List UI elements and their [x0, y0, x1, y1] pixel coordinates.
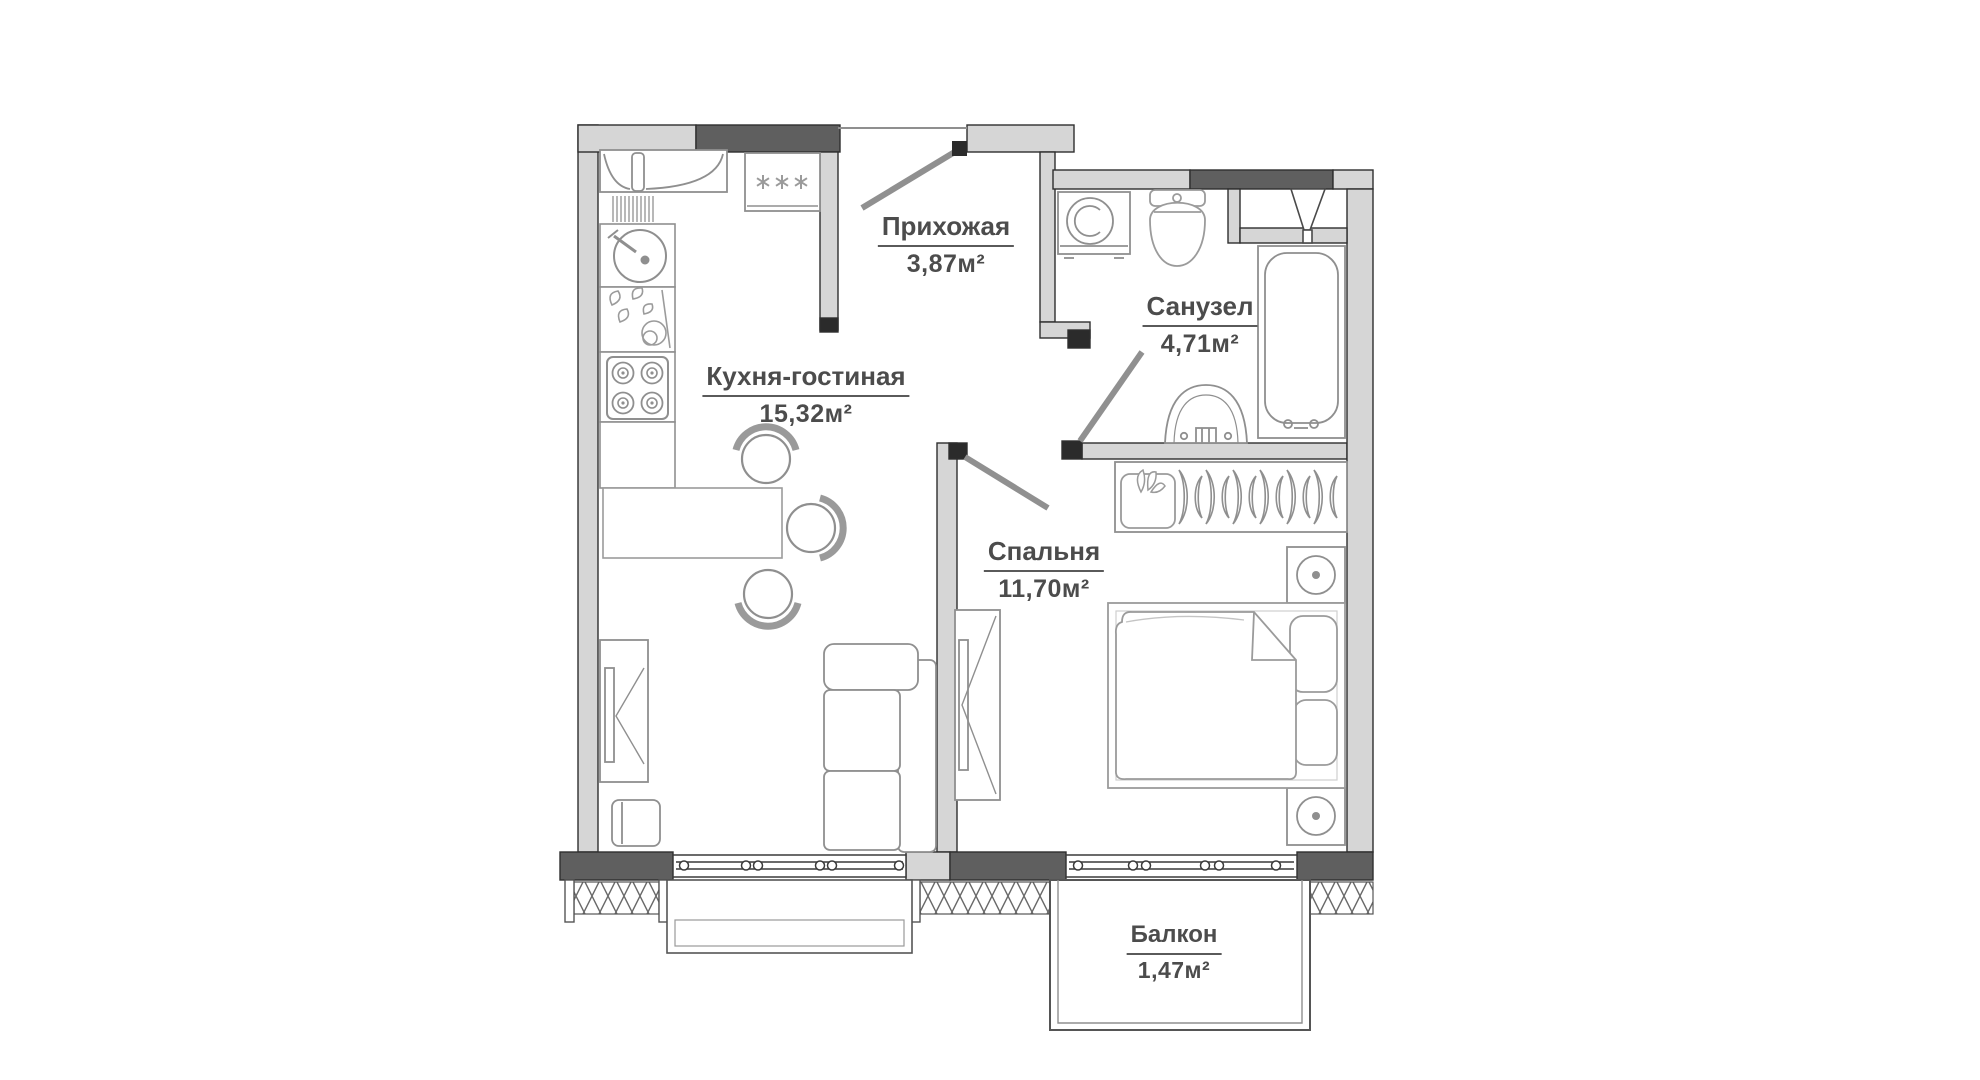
room-label-spalnya: Спальня 11,70м² — [984, 537, 1104, 603]
vent-grille-icon — [613, 196, 653, 222]
room-name: Балкон — [1127, 922, 1222, 955]
washbasin-icon — [1165, 385, 1247, 443]
hanger-rail-icon — [1115, 462, 1347, 532]
bedroom-door-icon — [965, 457, 1048, 508]
flower-box-icon — [1121, 470, 1175, 528]
duct-shelf — [1228, 189, 1347, 243]
fridge-icon — [600, 150, 727, 192]
window-sill-box — [667, 880, 912, 953]
dining-table-icon — [603, 488, 782, 558]
room-area: 15,32м² — [702, 400, 909, 428]
entrance-door-icon — [862, 141, 967, 208]
sofa-icon — [824, 644, 936, 852]
bathroom-door-icon — [1080, 352, 1142, 441]
tv-stand-icon — [600, 640, 648, 782]
room-area: 3,87м² — [878, 250, 1014, 278]
room-name: Спальня — [984, 537, 1104, 572]
washing-machine-icon — [1058, 192, 1130, 258]
kitchen-hood-icon — [745, 153, 820, 211]
bathtub-icon — [1258, 246, 1345, 438]
kitchen-window-icon — [673, 855, 906, 877]
room-name: Кухня-гостиная — [702, 362, 909, 397]
nightstand-bottom — [1287, 788, 1345, 845]
side-table-icon — [612, 800, 660, 846]
room-label-balkon: Балкон 1,47м² — [1127, 922, 1222, 984]
toilet-icon — [1150, 190, 1205, 266]
stove-icon — [607, 357, 668, 419]
shaft-wall — [696, 125, 840, 152]
room-label-kuhnya: Кухня-гостиная 15,32м² — [702, 362, 909, 428]
room-area: 4,71м² — [1143, 330, 1258, 358]
bed-icon — [1108, 603, 1345, 788]
room-label-sanuzel: Санузел 4,71м² — [1143, 292, 1258, 358]
mirror-wardrobe-icon — [955, 610, 1000, 800]
floor-plan-page: Прихожая 3,87м² Кухня-гостиная 15,32м² С… — [0, 0, 1980, 1080]
room-name: Санузел — [1143, 292, 1258, 327]
balcony-window-icon — [1066, 855, 1297, 877]
room-area: 1,47м² — [1127, 958, 1222, 984]
nightstand-top — [1287, 547, 1345, 603]
room-label-prihozhaya: Прихожая 3,87м² — [878, 212, 1014, 278]
room-area: 11,70м² — [984, 575, 1104, 603]
room-name: Прихожая — [878, 212, 1014, 247]
